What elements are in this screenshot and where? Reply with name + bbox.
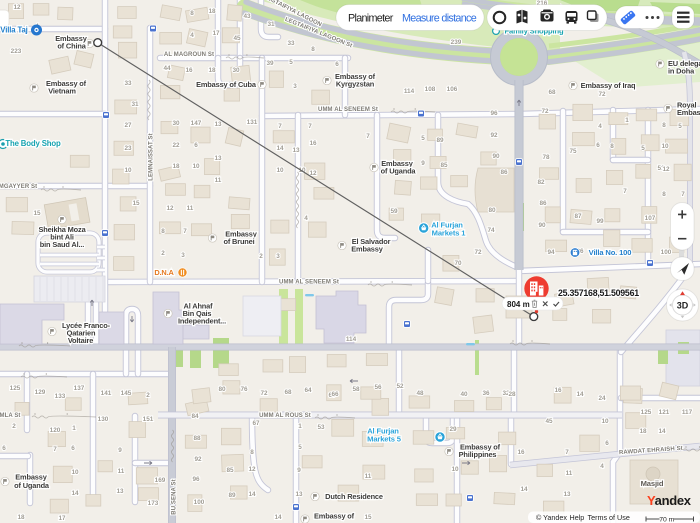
svg-text:70: 70: [454, 260, 462, 267]
svg-text:27: 27: [124, 122, 132, 129]
svg-text:Yandex: Yandex: [647, 493, 692, 508]
svg-text:Independent...: Independent...: [178, 317, 226, 326]
svg-text:8: 8: [161, 228, 165, 235]
svg-text:131: 131: [247, 119, 258, 126]
svg-text:133: 133: [55, 393, 66, 400]
svg-text:BU SENA St: BU SENA St: [172, 479, 178, 514]
svg-text:53: 53: [317, 424, 325, 431]
svg-text:25.357168,51.509561: 25.357168,51.509561: [558, 288, 639, 298]
svg-text:67: 67: [252, 420, 260, 427]
svg-text:9: 9: [297, 467, 301, 474]
svg-text:Embassy of: Embassy of: [314, 512, 355, 521]
svg-text:4: 4: [304, 215, 308, 222]
svg-text:23: 23: [124, 145, 132, 152]
svg-text:125: 125: [641, 409, 652, 416]
svg-text:43: 43: [243, 13, 251, 20]
svg-text:121: 121: [659, 409, 670, 416]
svg-text:Embassy of Cuba: Embassy of Cuba: [196, 80, 257, 89]
svg-text:17: 17: [212, 30, 220, 37]
svg-text:90: 90: [538, 222, 546, 229]
svg-text:10: 10: [192, 163, 200, 170]
svg-text:6: 6: [605, 440, 609, 447]
svg-text:7: 7: [53, 446, 57, 453]
svg-text:145: 145: [121, 390, 132, 397]
svg-text:28: 28: [508, 391, 516, 398]
svg-text:Vietnam: Vietnam: [48, 87, 76, 96]
svg-text:15: 15: [132, 200, 140, 207]
svg-text:13: 13: [116, 488, 124, 495]
svg-text:100: 100: [194, 499, 205, 506]
svg-text:12: 12: [662, 166, 670, 173]
svg-text:68: 68: [548, 89, 556, 96]
svg-text:AL MAGROUN St: AL MAGROUN St: [164, 52, 214, 58]
svg-text:11: 11: [118, 468, 125, 475]
svg-text:14: 14: [658, 428, 666, 435]
svg-text:11: 11: [187, 205, 194, 212]
svg-text:Philippines: Philippines: [459, 450, 497, 459]
svg-text:Measure distance: Measure distance: [402, 13, 477, 25]
svg-text:Dutch Residence: Dutch Residence: [325, 492, 383, 501]
svg-text:92: 92: [194, 456, 202, 463]
svg-text:of Uganda: of Uganda: [14, 481, 50, 490]
svg-text:6: 6: [335, 61, 339, 68]
svg-text:Terms of Use: Terms of Use: [588, 513, 630, 522]
svg-text:52: 52: [396, 383, 404, 390]
svg-text:1: 1: [72, 425, 76, 432]
svg-text:84: 84: [191, 413, 199, 420]
svg-text:Help: Help: [570, 513, 585, 522]
svg-text:18: 18: [172, 163, 180, 170]
svg-text:14: 14: [248, 491, 256, 498]
svg-text:78: 78: [542, 154, 550, 161]
svg-text:114: 114: [346, 336, 357, 343]
svg-text:5: 5: [289, 59, 293, 66]
svg-text:44: 44: [163, 65, 171, 72]
svg-text:92: 92: [490, 132, 498, 139]
svg-text:86: 86: [500, 169, 508, 176]
svg-text:14: 14: [276, 145, 284, 152]
svg-text:3: 3: [276, 253, 280, 260]
svg-text:125: 125: [10, 385, 21, 392]
svg-text:Villa Taj: Villa Taj: [0, 26, 27, 35]
svg-text:11: 11: [566, 470, 573, 477]
svg-text:UMM AL SENEEM St: UMM AL SENEEM St: [318, 107, 378, 113]
svg-text:LEMNAISSAT St: LEMNAISSAT St: [149, 133, 155, 181]
svg-text:56: 56: [374, 384, 382, 391]
svg-text:11: 11: [215, 177, 222, 184]
svg-text:18: 18: [208, 67, 216, 74]
svg-text:72: 72: [598, 91, 606, 98]
svg-text:99: 99: [596, 218, 604, 225]
svg-text:223: 223: [11, 48, 22, 55]
svg-text:66: 66: [331, 391, 339, 398]
svg-text:169: 169: [155, 477, 166, 484]
svg-text:6: 6: [2, 445, 6, 452]
svg-text:137: 137: [74, 385, 85, 392]
svg-text:106: 106: [447, 86, 458, 93]
svg-text:7: 7: [366, 133, 370, 140]
svg-text:9: 9: [421, 160, 425, 167]
svg-text:9: 9: [118, 447, 122, 454]
svg-text:Villa No. 100: Villa No. 100: [589, 248, 632, 257]
svg-text:108: 108: [425, 86, 436, 93]
svg-text:D.N.A: D.N.A: [154, 268, 174, 277]
svg-text:45: 45: [545, 418, 553, 425]
svg-text:13: 13: [214, 155, 222, 162]
svg-text:88: 88: [193, 435, 201, 442]
svg-text:68: 68: [284, 389, 292, 396]
svg-text:6: 6: [71, 445, 75, 452]
svg-text:72: 72: [260, 390, 268, 397]
svg-text:MGAYYER St: MGAYYER St: [0, 184, 37, 190]
svg-text:15: 15: [364, 514, 372, 521]
svg-text:2: 2: [146, 392, 150, 399]
svg-text:5: 5: [641, 145, 645, 152]
svg-text:36: 36: [482, 390, 490, 397]
svg-text:3: 3: [181, 252, 185, 259]
svg-text:48: 48: [416, 390, 424, 397]
svg-text:72: 72: [474, 249, 482, 256]
svg-text:5: 5: [298, 444, 302, 451]
svg-text:8: 8: [190, 10, 194, 17]
svg-text:17: 17: [58, 515, 66, 522]
svg-text:22: 22: [172, 142, 180, 149]
svg-text:33: 33: [287, 40, 295, 47]
svg-text:89: 89: [228, 492, 236, 499]
svg-text:of Brunei: of Brunei: [223, 237, 254, 246]
svg-text:Embassy of Iraq: Embassy of Iraq: [581, 81, 636, 90]
svg-text:7: 7: [681, 191, 685, 198]
svg-text:14: 14: [274, 514, 282, 521]
svg-text:of China: of China: [57, 42, 86, 51]
svg-text:96: 96: [192, 476, 200, 483]
svg-text:1: 1: [298, 423, 302, 430]
svg-text:58: 58: [352, 386, 360, 393]
svg-text:7: 7: [183, 228, 187, 235]
svg-text:13: 13: [563, 491, 571, 498]
svg-text:239: 239: [451, 39, 462, 46]
svg-text:10: 10: [276, 167, 284, 174]
svg-text:4: 4: [600, 463, 604, 470]
svg-text:18: 18: [639, 428, 647, 435]
svg-text:74: 74: [487, 227, 495, 234]
svg-text:10: 10: [124, 167, 132, 174]
svg-text:24: 24: [598, 395, 606, 402]
svg-text:30: 30: [172, 120, 180, 127]
svg-text:89: 89: [436, 137, 444, 144]
svg-text:173: 173: [148, 500, 159, 507]
svg-text:4: 4: [598, 123, 602, 130]
svg-text:Masjid: Masjid: [641, 479, 664, 488]
svg-text:80: 80: [488, 207, 496, 214]
svg-text:16: 16: [554, 387, 562, 394]
svg-text:1: 1: [625, 117, 629, 124]
svg-text:70 m: 70 m: [659, 516, 674, 523]
svg-text:117: 117: [682, 409, 693, 416]
svg-text:Embas: Embas: [677, 108, 700, 117]
svg-text:6: 6: [596, 142, 600, 149]
svg-text:85: 85: [226, 467, 234, 474]
svg-text:141: 141: [101, 390, 112, 397]
svg-text:12: 12: [13, 4, 21, 11]
svg-text:in Doha: in Doha: [668, 67, 695, 76]
svg-text:The Body Shop: The Body Shop: [5, 139, 61, 148]
svg-text:8: 8: [662, 191, 666, 198]
svg-text:75: 75: [569, 148, 577, 155]
svg-text:64: 64: [304, 387, 312, 394]
svg-text:8: 8: [662, 122, 666, 129]
svg-text:147: 147: [191, 120, 202, 127]
svg-text:94: 94: [547, 249, 555, 256]
svg-text:5: 5: [678, 123, 682, 130]
svg-text:Markets 5: Markets 5: [367, 435, 402, 444]
svg-text:129: 129: [35, 389, 46, 396]
svg-text:29: 29: [449, 426, 457, 433]
svg-text:14: 14: [71, 490, 79, 497]
svg-text:8: 8: [311, 46, 315, 53]
svg-text:10: 10: [451, 466, 459, 473]
svg-text:16: 16: [185, 67, 193, 74]
svg-text:15: 15: [33, 210, 41, 217]
svg-text:Planimeter: Planimeter: [348, 13, 394, 25]
svg-text:31: 31: [267, 21, 275, 28]
svg-text:Voltaire: Voltaire: [68, 336, 93, 345]
svg-text:6: 6: [194, 142, 198, 149]
svg-text:7: 7: [623, 188, 627, 195]
svg-text:bin Saud Al...: bin Saud Al...: [40, 240, 85, 249]
svg-text:33: 33: [124, 80, 132, 87]
svg-text:151: 151: [143, 416, 154, 423]
svg-text:14: 14: [520, 486, 528, 493]
svg-text:Embassy: Embassy: [351, 245, 383, 254]
svg-text:85: 85: [440, 162, 448, 169]
svg-text:120: 120: [50, 427, 61, 434]
svg-text:16: 16: [517, 449, 525, 456]
svg-text:107: 107: [645, 215, 656, 222]
svg-text:10: 10: [601, 418, 609, 425]
svg-text:8: 8: [610, 143, 614, 150]
svg-text:16: 16: [309, 140, 317, 147]
svg-text:Markets 1: Markets 1: [432, 229, 467, 238]
svg-text:804 m: 804 m: [507, 300, 530, 309]
svg-text:130: 130: [98, 416, 109, 423]
svg-text:8: 8: [250, 449, 254, 456]
svg-text:10: 10: [661, 143, 669, 150]
svg-text:2: 2: [161, 250, 165, 257]
svg-text:12: 12: [166, 205, 174, 212]
svg-text:76: 76: [240, 386, 248, 393]
svg-text:11: 11: [365, 473, 372, 480]
svg-text:18: 18: [208, 8, 216, 15]
svg-text:31: 31: [131, 101, 139, 108]
svg-text:12: 12: [248, 466, 256, 473]
svg-text:7: 7: [308, 123, 312, 130]
svg-text:UMM AL SENEEM St: UMM AL SENEEM St: [279, 280, 339, 286]
svg-text:4: 4: [190, 32, 194, 39]
svg-text:80: 80: [218, 386, 226, 393]
svg-text:45: 45: [233, 35, 241, 42]
svg-text:96: 96: [490, 110, 498, 117]
svg-text:72: 72: [541, 108, 549, 115]
svg-text:5: 5: [421, 135, 425, 142]
svg-text:13: 13: [214, 121, 222, 128]
svg-text:Kyrgyzstan: Kyrgyzstan: [336, 80, 375, 89]
svg-text:2: 2: [12, 423, 16, 430]
svg-text:30: 30: [232, 67, 240, 74]
svg-text:3D: 3D: [677, 301, 689, 311]
svg-text:90: 90: [492, 153, 500, 160]
svg-text:82: 82: [537, 179, 545, 186]
svg-text:7: 7: [278, 123, 282, 130]
svg-text:18: 18: [17, 514, 25, 521]
svg-text:59: 59: [390, 208, 398, 215]
svg-text:2: 2: [259, 253, 263, 260]
svg-text:3: 3: [293, 83, 297, 90]
svg-text:UMM AL ROUS St: UMM AL ROUS St: [259, 413, 311, 419]
svg-text:87: 87: [574, 213, 582, 220]
svg-text:10: 10: [71, 469, 79, 476]
svg-text:100: 100: [661, 249, 672, 256]
svg-text:86: 86: [539, 200, 547, 207]
svg-text:40: 40: [460, 391, 468, 398]
svg-text:© Yandex: © Yandex: [536, 513, 567, 522]
svg-text:of Uganda: of Uganda: [381, 167, 417, 176]
svg-text:7: 7: [565, 449, 569, 456]
svg-text:114: 114: [404, 88, 415, 95]
svg-text:13: 13: [295, 491, 303, 498]
svg-text:13: 13: [292, 147, 300, 154]
svg-text:14: 14: [576, 391, 584, 398]
svg-text:39: 39: [266, 60, 274, 67]
svg-text:MLA St: MLA St: [0, 413, 21, 419]
